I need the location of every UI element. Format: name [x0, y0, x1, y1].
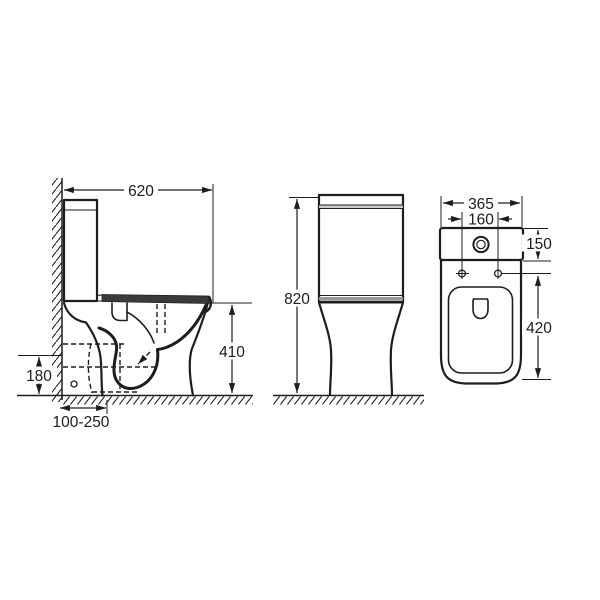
- flush-button-inner-icon: [477, 240, 485, 248]
- cistern-side: [64, 200, 97, 301]
- dim-150-label: 150: [526, 236, 552, 253]
- floor-hatch-side: [62, 397, 253, 405]
- pedestal-right-front: [391, 303, 403, 396]
- pedestal-back: [86, 323, 103, 396]
- dimension-seat-height: 410: [209, 303, 252, 393]
- bowl-outline-plan: [441, 260, 521, 384]
- flush-spout: [64, 303, 86, 323]
- top-view: 365 160 150 420: [440, 195, 557, 384]
- toilet-dimension-diagram: 620 410 180 100-250: [0, 0, 600, 600]
- seat-opening-plan: [449, 287, 513, 373]
- dimension-outlet-offset: 100-250: [53, 400, 110, 431]
- seat-band-front: [319, 297, 403, 301]
- outlet-center-mark: [71, 381, 77, 387]
- dim-620-label: 620: [128, 183, 154, 200]
- bowl-inner-line: [127, 312, 154, 343]
- dim-365-label: 365: [468, 196, 494, 213]
- dim-820-label: 820: [284, 291, 310, 308]
- flush-inlet-plan: [473, 299, 488, 319]
- front-view: 820: [273, 195, 424, 405]
- dim-100-250-label: 100-250: [53, 414, 110, 431]
- cistern-front: [319, 195, 403, 302]
- flush-button-icon: [473, 237, 488, 252]
- dim-420-label: 420: [526, 320, 552, 337]
- side-view: 620 410 180 100-250: [17, 178, 253, 431]
- floor-hatch-front: [273, 397, 424, 405]
- cistern-lid-band: [319, 206, 403, 209]
- dim-160-label: 160: [468, 212, 494, 229]
- technical-drawing-sheet: 620 410 180 100-250: [0, 0, 600, 600]
- seat-side: [102, 295, 209, 304]
- dimension-cistern-depth: 150: [522, 229, 556, 262]
- dimension-bowl-length: 420: [501, 274, 557, 380]
- dimension-overall-height: 820: [279, 198, 319, 394]
- pedestal-left-front: [319, 303, 331, 396]
- dim-180-label: 180: [26, 368, 52, 385]
- bowl-rim: [158, 305, 207, 350]
- cistern-plan: [440, 228, 523, 260]
- bowl-trap: [99, 328, 158, 389]
- dim-410-label: 410: [219, 344, 245, 361]
- dimension-fixing-hole-spacing: 160: [448, 211, 512, 229]
- seat-hinge: [112, 303, 127, 321]
